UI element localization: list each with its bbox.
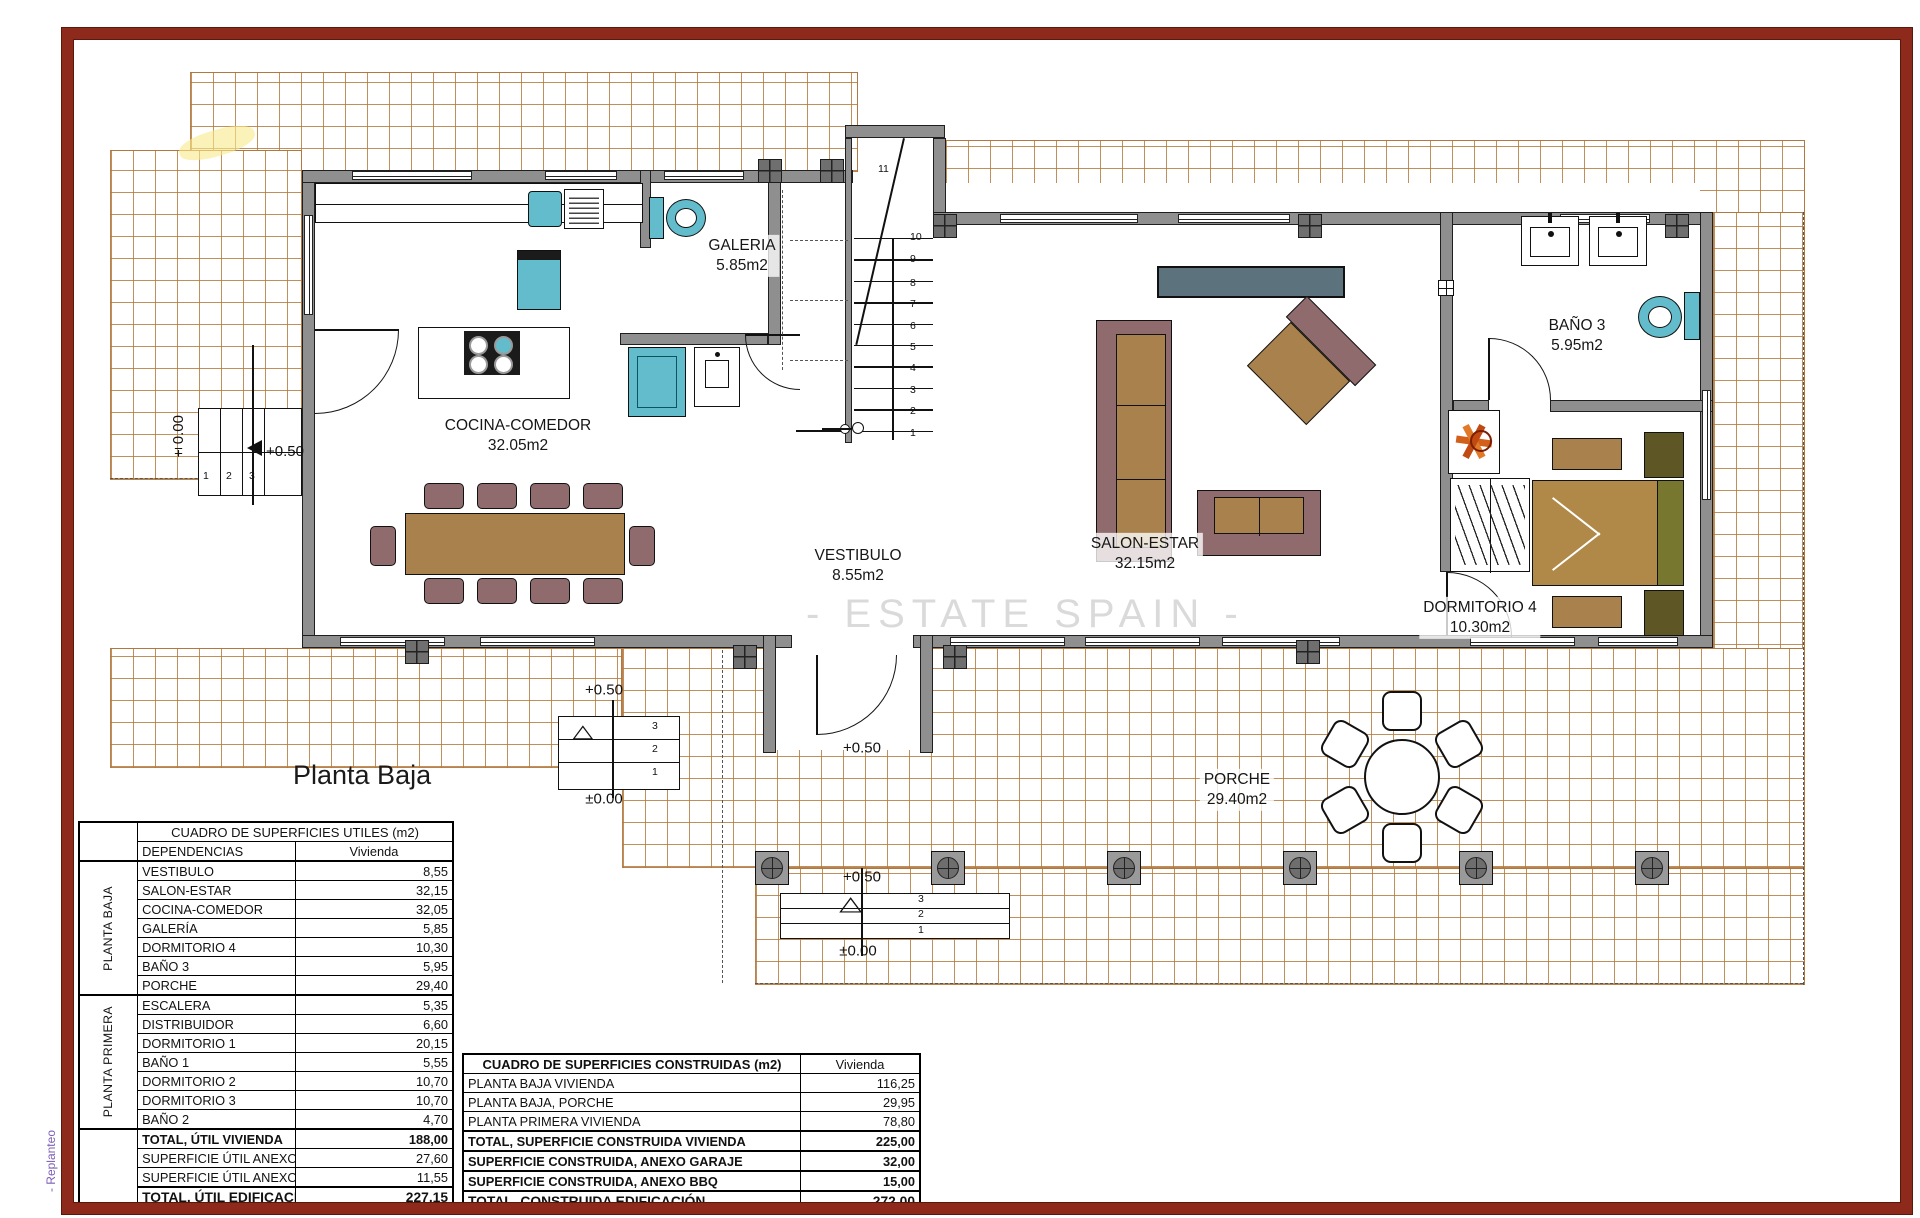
page-border-frame [62, 28, 1912, 1214]
floor-plan-sheet: 12345678910 11 [0, 0, 1920, 1218]
margin-note: - Replanteo [44, 1130, 58, 1192]
